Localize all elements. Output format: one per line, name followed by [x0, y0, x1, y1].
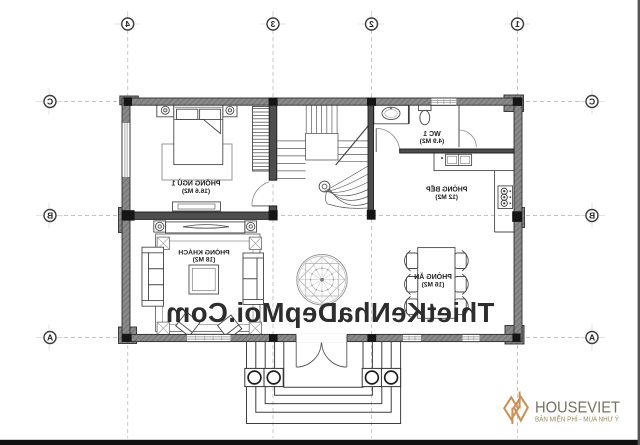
- svg-text:ThietKeNhaDepMoi.Com: ThietKeNhaDepMoi.Com: [166, 297, 495, 328]
- svg-text:A: A: [589, 333, 595, 343]
- svg-text:WC 1: WC 1: [423, 131, 441, 138]
- svg-text:PHÒNG KHÁCH: PHÒNG KHÁCH: [178, 247, 229, 256]
- svg-text:(16.6 M2): (16.6 M2): [182, 188, 210, 195]
- svg-text:(12 M2): (12 M2): [435, 194, 458, 201]
- svg-text:B: B: [589, 211, 595, 221]
- svg-text:2: 2: [369, 19, 374, 29]
- svg-text:1: 1: [515, 19, 520, 29]
- svg-text:BẢN MIỄN PHÍ - MUA NHƯ Ý: BẢN MIỄN PHÍ - MUA NHƯ Ý: [535, 415, 619, 424]
- svg-text:4: 4: [125, 19, 130, 29]
- svg-text:C: C: [589, 97, 595, 107]
- svg-text:C: C: [47, 97, 53, 107]
- svg-text:A: A: [47, 333, 53, 343]
- svg-text:(16 M2): (16 M2): [422, 281, 445, 288]
- svg-text:PHÒNG NGỦ 1: PHÒNG NGỦ 1: [171, 179, 220, 188]
- svg-text:PHÒNG ĂN: PHÒNG ĂN: [414, 272, 452, 281]
- svg-text:3: 3: [270, 19, 275, 29]
- svg-text:(4.9 M2): (4.9 M2): [420, 138, 445, 145]
- svg-text:B: B: [47, 211, 53, 221]
- svg-text:HOUSEVIET: HOUSEVIET: [535, 400, 620, 417]
- svg-text:(18 M2): (18 M2): [193, 256, 216, 263]
